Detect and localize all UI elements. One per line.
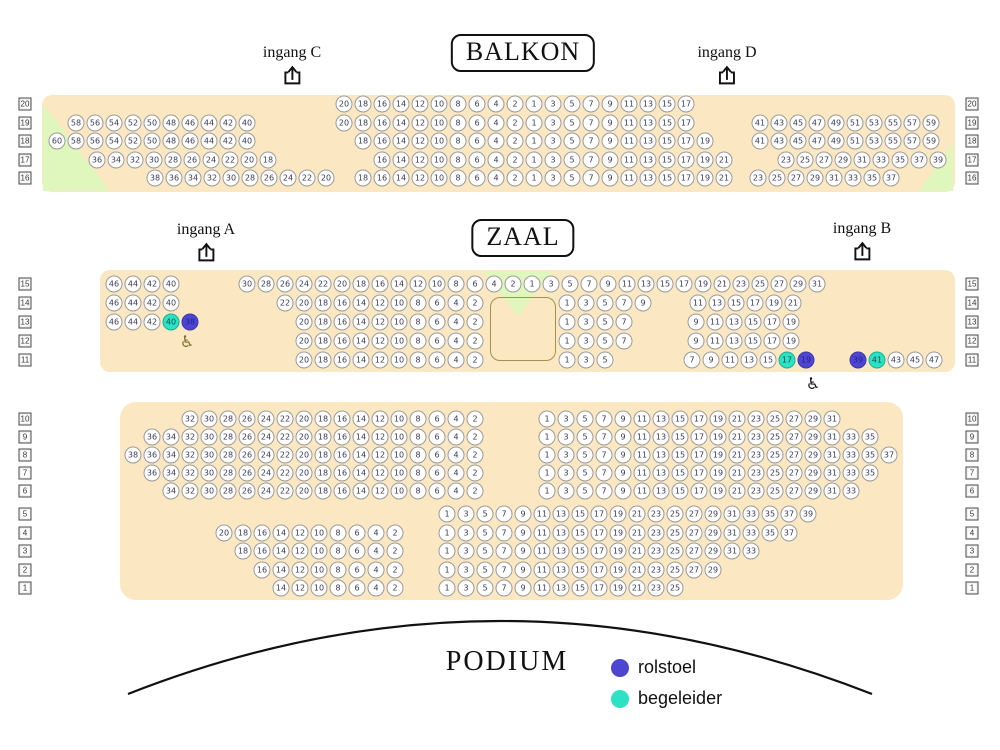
seat[interactable]: 36	[89, 152, 106, 169]
seat[interactable]: 6	[469, 152, 486, 169]
seat[interactable]: 22	[277, 465, 294, 482]
seat[interactable]: 20	[296, 465, 313, 482]
seat[interactable]: 12	[412, 115, 429, 132]
seat[interactable]: 11	[707, 314, 724, 331]
seat[interactable]: 5	[597, 314, 614, 331]
seat[interactable]: 14	[353, 465, 370, 482]
seat[interactable]: 6	[469, 133, 486, 150]
seat[interactable]: 18	[235, 543, 252, 560]
seat[interactable]: 27	[786, 411, 803, 428]
seat[interactable]: 5	[564, 152, 581, 169]
seat[interactable]: 32	[182, 465, 199, 482]
seat[interactable]: 19	[610, 562, 627, 579]
seat[interactable]: 19	[610, 543, 627, 560]
seat[interactable]: 17	[678, 152, 695, 169]
seat-begeleider[interactable]: 41	[869, 352, 886, 369]
seat[interactable]: 11	[634, 411, 651, 428]
seat[interactable]: 10	[391, 333, 408, 350]
seat[interactable]: 17	[691, 447, 708, 464]
seat[interactable]: 2	[467, 465, 484, 482]
seat[interactable]: 2	[507, 115, 524, 132]
seat[interactable]: 14	[273, 525, 290, 542]
seat[interactable]: 4	[448, 429, 465, 446]
seat[interactable]: 10	[311, 580, 328, 597]
seat[interactable]: 10	[391, 483, 408, 500]
seat[interactable]: 15	[745, 333, 762, 350]
seat[interactable]: 22	[299, 170, 316, 187]
seat[interactable]: 24	[280, 170, 297, 187]
seat[interactable]: 30	[239, 276, 256, 293]
seat[interactable]: 2	[387, 543, 404, 560]
seat[interactable]: 6	[429, 429, 446, 446]
seat[interactable]: 33	[743, 506, 760, 523]
seat[interactable]: 38	[125, 447, 142, 464]
seat[interactable]: 16	[374, 115, 391, 132]
seat[interactable]: 29	[790, 276, 807, 293]
seat[interactable]: 17	[591, 543, 608, 560]
seat[interactable]: 2	[467, 333, 484, 350]
seat[interactable]: 7	[583, 170, 600, 187]
seat[interactable]: 10	[391, 314, 408, 331]
seat[interactable]: 42	[220, 115, 237, 132]
seat[interactable]: 10	[391, 465, 408, 482]
seat[interactable]: 23	[748, 447, 765, 464]
seat[interactable]: 40	[163, 276, 180, 293]
seat[interactable]: 11	[534, 580, 551, 597]
seat[interactable]: 15	[672, 447, 689, 464]
seat[interactable]: 24	[296, 276, 313, 293]
seat[interactable]: 28	[220, 465, 237, 482]
seat[interactable]: 1	[539, 465, 556, 482]
seat[interactable]: 23	[748, 411, 765, 428]
seat[interactable]: 23	[750, 170, 767, 187]
seat-begeleider[interactable]: 40	[163, 314, 180, 331]
seat[interactable]: 1	[559, 352, 576, 369]
seat[interactable]: 15	[672, 429, 689, 446]
seat[interactable]: 21	[629, 562, 646, 579]
seat[interactable]: 19	[610, 580, 627, 597]
seat[interactable]: 4	[448, 447, 465, 464]
seat[interactable]: 13	[553, 506, 570, 523]
seat[interactable]: 17	[678, 170, 695, 187]
seat[interactable]: 47	[809, 133, 826, 150]
seat[interactable]: 17	[678, 96, 695, 113]
seat[interactable]: 2	[505, 276, 522, 293]
seat[interactable]: 10	[311, 562, 328, 579]
seat[interactable]: 13	[653, 465, 670, 482]
seat-rolstoel[interactable]: 38	[182, 314, 199, 331]
seat[interactable]: 18	[355, 170, 372, 187]
seat[interactable]: 36	[144, 447, 161, 464]
seat[interactable]: 13	[640, 133, 657, 150]
seat[interactable]: 32	[182, 483, 199, 500]
seat[interactable]: 14	[393, 115, 410, 132]
seat[interactable]: 23	[733, 276, 750, 293]
seat[interactable]: 24	[258, 429, 275, 446]
seat[interactable]: 25	[767, 465, 784, 482]
seat[interactable]: 6	[469, 115, 486, 132]
seat[interactable]: 11	[621, 170, 638, 187]
seat[interactable]: 6	[349, 543, 366, 560]
seat[interactable]: 14	[353, 411, 370, 428]
seat[interactable]: 19	[710, 411, 727, 428]
seat[interactable]: 20	[334, 276, 351, 293]
seat[interactable]: 8	[410, 333, 427, 350]
seat[interactable]: 57	[904, 133, 921, 150]
seat[interactable]: 45	[790, 115, 807, 132]
seat[interactable]: 10	[311, 543, 328, 560]
seat[interactable]: 7	[583, 133, 600, 150]
seat[interactable]: 30	[201, 465, 218, 482]
seat[interactable]: 7	[581, 276, 598, 293]
seat[interactable]: 9	[615, 411, 632, 428]
seat[interactable]: 13	[709, 295, 726, 312]
seat[interactable]: 18	[355, 96, 372, 113]
seat[interactable]: 14	[393, 96, 410, 113]
seat[interactable]: 15	[657, 276, 674, 293]
seat[interactable]: 13	[726, 314, 743, 331]
seat[interactable]: 5	[477, 525, 494, 542]
seat[interactable]: 28	[220, 411, 237, 428]
seat[interactable]: 25	[767, 447, 784, 464]
seat[interactable]: 7	[583, 152, 600, 169]
seat[interactable]: 19	[710, 447, 727, 464]
seat[interactable]: 44	[201, 133, 218, 150]
seat[interactable]: 49	[828, 115, 845, 132]
seat[interactable]: 53	[866, 115, 883, 132]
seat[interactable]: 20	[296, 447, 313, 464]
seat[interactable]: 22	[222, 152, 239, 169]
seat[interactable]: 16	[334, 314, 351, 331]
seat[interactable]: 28	[220, 447, 237, 464]
seat[interactable]: 19	[610, 525, 627, 542]
seat[interactable]: 54	[106, 133, 123, 150]
seat[interactable]: 28	[220, 483, 237, 500]
seat[interactable]: 55	[885, 115, 902, 132]
seat[interactable]: 10	[431, 152, 448, 169]
seat[interactable]: 33	[843, 483, 860, 500]
seat[interactable]: 21	[714, 276, 731, 293]
seat[interactable]: 49	[828, 133, 845, 150]
seat[interactable]: 4	[488, 96, 505, 113]
seat[interactable]: 20	[336, 96, 353, 113]
seat[interactable]: 24	[258, 411, 275, 428]
seat[interactable]: 25	[667, 525, 684, 542]
seat[interactable]: 3	[578, 352, 595, 369]
seat[interactable]: 10	[431, 115, 448, 132]
seat[interactable]: 18	[353, 276, 370, 293]
seat[interactable]: 2	[507, 133, 524, 150]
seat[interactable]: 18	[315, 314, 332, 331]
seat[interactable]: 1	[559, 295, 576, 312]
seat[interactable]: 17	[591, 562, 608, 579]
seat[interactable]: 16	[334, 352, 351, 369]
seat[interactable]: 18	[355, 133, 372, 150]
seat[interactable]: 9	[615, 447, 632, 464]
seat[interactable]: 42	[144, 276, 161, 293]
seat[interactable]: 9	[600, 276, 617, 293]
seat[interactable]: 2	[387, 525, 404, 542]
seat[interactable]: 9	[703, 352, 720, 369]
seat[interactable]: 13	[640, 96, 657, 113]
seat[interactable]: 7	[496, 525, 513, 542]
seat[interactable]: 8	[450, 96, 467, 113]
seat[interactable]: 17	[678, 115, 695, 132]
seat[interactable]: 18	[260, 152, 277, 169]
seat[interactable]: 5	[597, 333, 614, 350]
seat[interactable]: 5	[597, 295, 614, 312]
seat[interactable]: 5	[577, 447, 594, 464]
seat[interactable]: 2	[507, 96, 524, 113]
seat[interactable]: 9	[515, 543, 532, 560]
seat[interactable]: 36	[166, 170, 183, 187]
seat[interactable]: 5	[577, 411, 594, 428]
seat[interactable]: 4	[488, 152, 505, 169]
seat[interactable]: 8	[330, 525, 347, 542]
seat[interactable]: 37	[781, 525, 798, 542]
seat[interactable]: 5	[477, 506, 494, 523]
seat[interactable]: 33	[873, 152, 890, 169]
seat[interactable]: 4	[448, 352, 465, 369]
seat[interactable]: 17	[764, 314, 781, 331]
seat[interactable]: 19	[766, 295, 783, 312]
seat[interactable]: 27	[686, 562, 703, 579]
seat[interactable]: 59	[923, 115, 940, 132]
seat[interactable]: 25	[797, 152, 814, 169]
seat[interactable]: 17	[691, 429, 708, 446]
seat[interactable]: 31	[824, 465, 841, 482]
seat[interactable]: 12	[412, 96, 429, 113]
seat[interactable]: 18	[315, 465, 332, 482]
seat[interactable]: 8	[410, 429, 427, 446]
seat[interactable]: 21	[716, 170, 733, 187]
seat[interactable]: 21	[629, 506, 646, 523]
seat[interactable]: 14	[393, 152, 410, 169]
seat[interactable]: 34	[185, 170, 202, 187]
seat[interactable]: 20	[296, 429, 313, 446]
seat[interactable]: 3	[558, 411, 575, 428]
seat[interactable]: 23	[648, 562, 665, 579]
seat[interactable]: 21	[729, 429, 746, 446]
seat[interactable]: 12	[292, 562, 309, 579]
seat[interactable]: 26	[261, 170, 278, 187]
seat[interactable]: 26	[239, 447, 256, 464]
seat[interactable]: 56	[87, 115, 104, 132]
seat[interactable]: 11	[634, 447, 651, 464]
seat[interactable]: 5	[564, 170, 581, 187]
seat[interactable]: 22	[277, 429, 294, 446]
seat[interactable]: 39	[800, 506, 817, 523]
seat[interactable]: 5	[477, 562, 494, 579]
seat[interactable]: 9	[635, 295, 652, 312]
seat[interactable]: 26	[277, 276, 294, 293]
seat[interactable]: 43	[771, 133, 788, 150]
seat[interactable]: 16	[254, 543, 271, 560]
seat[interactable]: 1	[539, 429, 556, 446]
seat[interactable]: 1	[539, 483, 556, 500]
seat[interactable]: 15	[745, 314, 762, 331]
seat[interactable]: 29	[805, 411, 822, 428]
seat[interactable]: 5	[477, 543, 494, 560]
seat[interactable]: 35	[862, 447, 879, 464]
seat[interactable]: 5	[477, 580, 494, 597]
seat[interactable]: 20	[336, 115, 353, 132]
seat[interactable]: 31	[854, 152, 871, 169]
seat[interactable]: 27	[786, 465, 803, 482]
seat[interactable]: 3	[458, 525, 475, 542]
seat[interactable]: 21	[716, 152, 733, 169]
seat[interactable]: 17	[747, 295, 764, 312]
seat[interactable]: 21	[785, 295, 802, 312]
seat[interactable]: 55	[885, 133, 902, 150]
seat[interactable]: 6	[469, 170, 486, 187]
seat[interactable]: 9	[515, 562, 532, 579]
seat[interactable]: 13	[653, 483, 670, 500]
seat[interactable]: 9	[602, 170, 619, 187]
seat[interactable]: 6	[429, 411, 446, 428]
seat[interactable]: 18	[315, 411, 332, 428]
seat[interactable]: 6	[429, 352, 446, 369]
seat[interactable]: 14	[353, 429, 370, 446]
seat[interactable]: 1	[526, 152, 543, 169]
seat[interactable]: 16	[334, 429, 351, 446]
seat[interactable]: 16	[254, 562, 271, 579]
seat[interactable]: 3	[458, 580, 475, 597]
seat[interactable]: 16	[334, 295, 351, 312]
seat[interactable]: 31	[824, 447, 841, 464]
seat[interactable]: 17	[691, 483, 708, 500]
seat[interactable]: 4	[368, 580, 385, 597]
seat[interactable]: 4	[448, 483, 465, 500]
seat[interactable]: 7	[596, 411, 613, 428]
seat[interactable]: 28	[242, 170, 259, 187]
seat[interactable]: 36	[144, 465, 161, 482]
seat[interactable]: 19	[710, 483, 727, 500]
seat[interactable]: 14	[391, 276, 408, 293]
seat[interactable]: 1	[524, 276, 541, 293]
seat[interactable]: 5	[577, 483, 594, 500]
seat[interactable]: 42	[144, 295, 161, 312]
seat[interactable]: 33	[845, 170, 862, 187]
seat[interactable]: 13	[653, 411, 670, 428]
seat[interactable]: 14	[353, 483, 370, 500]
seat[interactable]: 10	[391, 411, 408, 428]
seat[interactable]: 13	[653, 447, 670, 464]
seat[interactable]: 7	[684, 352, 701, 369]
seat[interactable]: 23	[778, 152, 795, 169]
seat[interactable]: 10	[431, 170, 448, 187]
seat[interactable]: 21	[729, 447, 746, 464]
seat[interactable]: 4	[488, 115, 505, 132]
seat[interactable]: 15	[659, 152, 676, 169]
seat[interactable]: 30	[201, 447, 218, 464]
seat[interactable]: 16	[374, 152, 391, 169]
seat[interactable]: 32	[204, 170, 221, 187]
seat[interactable]: 11	[534, 543, 551, 560]
seat[interactable]: 11	[534, 525, 551, 542]
seat[interactable]: 25	[767, 411, 784, 428]
seat[interactable]: 8	[450, 133, 467, 150]
seat[interactable]: 18	[315, 483, 332, 500]
seat[interactable]: 40	[239, 115, 256, 132]
seat[interactable]: 1	[526, 96, 543, 113]
seat[interactable]: 30	[201, 429, 218, 446]
seat[interactable]: 34	[163, 429, 180, 446]
seat[interactable]: 44	[125, 295, 142, 312]
seat[interactable]: 22	[315, 276, 332, 293]
seat[interactable]: 4	[488, 133, 505, 150]
seat[interactable]: 35	[892, 152, 909, 169]
seat[interactable]: 23	[648, 580, 665, 597]
seat[interactable]: 8	[450, 115, 467, 132]
seat[interactable]: 11	[722, 352, 739, 369]
seat[interactable]: 37	[781, 506, 798, 523]
seat[interactable]: 46	[106, 314, 123, 331]
seat[interactable]: 13	[726, 333, 743, 350]
seat[interactable]: 27	[686, 543, 703, 560]
seat[interactable]: 32	[127, 152, 144, 169]
seat[interactable]: 23	[648, 506, 665, 523]
seat[interactable]: 15	[672, 411, 689, 428]
seat[interactable]: 17	[691, 465, 708, 482]
seat[interactable]: 37	[881, 447, 898, 464]
seat[interactable]: 9	[602, 96, 619, 113]
seat[interactable]: 30	[201, 483, 218, 500]
seat[interactable]: 16	[334, 465, 351, 482]
seat-begeleider[interactable]: 17	[779, 352, 796, 369]
seat[interactable]: 14	[353, 447, 370, 464]
seat[interactable]: 6	[469, 96, 486, 113]
seat[interactable]: 20	[296, 411, 313, 428]
seat[interactable]: 18	[315, 295, 332, 312]
seat[interactable]: 24	[203, 152, 220, 169]
seat[interactable]: 17	[691, 411, 708, 428]
seat[interactable]: 35	[762, 506, 779, 523]
seat[interactable]: 5	[564, 133, 581, 150]
seat[interactable]: 22	[277, 483, 294, 500]
seat[interactable]: 3	[458, 543, 475, 560]
seat[interactable]: 13	[553, 580, 570, 597]
seat[interactable]: 5	[562, 276, 579, 293]
seat[interactable]: 12	[372, 465, 389, 482]
seat[interactable]: 13	[741, 352, 758, 369]
seat[interactable]: 17	[591, 506, 608, 523]
seat[interactable]: 16	[334, 447, 351, 464]
seat[interactable]: 27	[686, 506, 703, 523]
seat[interactable]: 26	[239, 411, 256, 428]
seat[interactable]: 4	[448, 314, 465, 331]
seat[interactable]: 24	[258, 465, 275, 482]
seat[interactable]: 28	[258, 276, 275, 293]
seat[interactable]: 11	[634, 429, 651, 446]
seat[interactable]: 33	[743, 543, 760, 560]
seat[interactable]: 13	[653, 429, 670, 446]
seat[interactable]: 11	[621, 115, 638, 132]
seat[interactable]: 19	[697, 170, 714, 187]
seat[interactable]: 10	[311, 525, 328, 542]
seat[interactable]: 18	[315, 333, 332, 350]
seat[interactable]: 10	[391, 295, 408, 312]
seat[interactable]: 1	[526, 170, 543, 187]
seat[interactable]: 35	[864, 170, 881, 187]
seat[interactable]: 54	[106, 115, 123, 132]
seat[interactable]: 7	[583, 115, 600, 132]
seat[interactable]: 32	[182, 447, 199, 464]
seat[interactable]: 7	[496, 506, 513, 523]
seat[interactable]: 31	[826, 170, 843, 187]
seat[interactable]: 58	[68, 115, 85, 132]
seat[interactable]: 7	[616, 314, 633, 331]
